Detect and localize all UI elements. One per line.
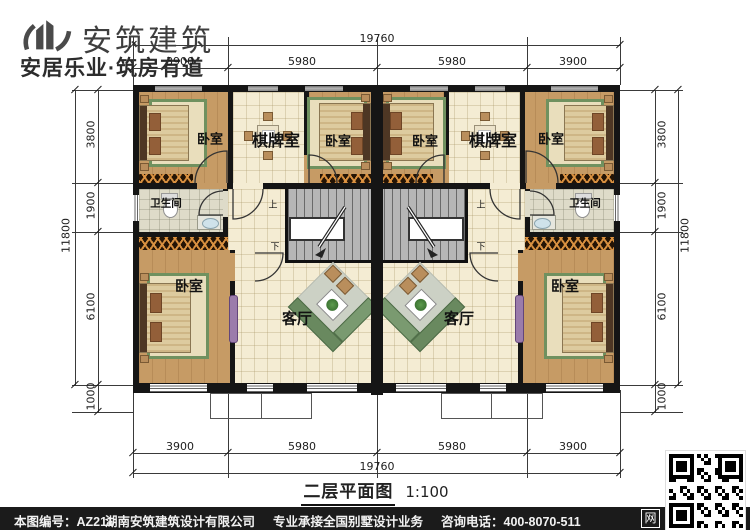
room-label-game-room: 棋牌室 bbox=[469, 127, 517, 151]
door-arc bbox=[233, 189, 263, 219]
room-label-bedroom: 卧室 bbox=[551, 276, 579, 296]
stair-arrow bbox=[408, 207, 434, 247]
door-arc bbox=[309, 155, 337, 183]
dim-label: 3900 bbox=[548, 55, 598, 68]
dim-label: 19760 bbox=[352, 32, 402, 45]
qr-code bbox=[666, 451, 745, 530]
dim-line bbox=[75, 90, 76, 385]
dim-label: 6100 bbox=[85, 282, 98, 332]
building-logo-icon bbox=[18, 12, 78, 54]
ext-line bbox=[620, 390, 621, 478]
room-label-bedroom: 卧室 bbox=[175, 276, 203, 296]
dim-label: 19760 bbox=[352, 460, 402, 473]
ext-line bbox=[527, 37, 528, 85]
drawing-title: 二层平面图 bbox=[301, 477, 395, 506]
dim-label: 5980 bbox=[277, 55, 327, 68]
dim-line bbox=[98, 90, 99, 412]
footer-info: 湖南安筑建筑设计有限公司 专业承接全国别墅设计业务 咨询电话：400-8070-… bbox=[105, 511, 581, 530]
dim-label: 1000 bbox=[656, 372, 669, 422]
logo bbox=[18, 12, 78, 54]
service-text: 专业承接全国别墅设计业务 bbox=[273, 511, 423, 530]
room-label-bedroom: 卧室 bbox=[538, 129, 564, 148]
qr-code-modules bbox=[669, 454, 743, 528]
room-label-bathroom: 卫生间 bbox=[569, 196, 601, 211]
dim-label: 1900 bbox=[85, 181, 98, 231]
dim-label: 5980 bbox=[427, 440, 477, 453]
stair-arrow-head bbox=[315, 248, 326, 258]
dim-label: 3900 bbox=[155, 440, 205, 453]
floor-plan-sheet: 安筑建筑 安居乐业·筑房有道 hunanazjz.com hunanazjz.c… bbox=[0, 0, 750, 530]
company-name: 湖南安筑建筑设计有限公司 bbox=[105, 511, 255, 530]
dim-label: 6100 bbox=[656, 282, 669, 332]
door-arc bbox=[530, 191, 554, 215]
stair-label-down: 下 bbox=[476, 240, 485, 253]
door-arc bbox=[470, 253, 498, 281]
ext-line bbox=[228, 37, 229, 85]
web-badge: 网 bbox=[641, 509, 660, 528]
dim-line bbox=[133, 473, 620, 474]
door-arc bbox=[199, 191, 223, 215]
room-label-bedroom: 卧室 bbox=[325, 131, 351, 150]
dim-label: 5980 bbox=[277, 440, 327, 453]
dim-label: 11800 bbox=[60, 211, 73, 261]
ext-line bbox=[72, 90, 133, 91]
dim-label: 1900 bbox=[656, 181, 669, 231]
ext-line bbox=[72, 232, 133, 233]
dim-label: 11800 bbox=[679, 211, 692, 261]
dim-label: 3800 bbox=[85, 110, 98, 160]
footer-bar: 本图编号：AZ211 湖南安筑建筑设计有限公司 专业承接全国别墅设计业务 咨询电… bbox=[0, 507, 750, 530]
drawing-title-block: 二层平面图 1:100 bbox=[250, 477, 500, 506]
phone-number: 咨询电话：400-8070-511 bbox=[441, 511, 581, 530]
stair-arrow-head bbox=[427, 248, 438, 258]
stair-label-up: 上 bbox=[268, 198, 277, 211]
door-arc bbox=[255, 253, 283, 281]
dim-label: 3900 bbox=[155, 55, 205, 68]
stair-label-up: 上 bbox=[476, 198, 485, 211]
room-label-bathroom: 卫生间 bbox=[150, 196, 182, 211]
dim-label: 3900 bbox=[548, 440, 598, 453]
door-arc bbox=[195, 151, 227, 183]
ext-line bbox=[72, 183, 133, 184]
ext-line bbox=[72, 412, 133, 413]
dim-label: 5980 bbox=[427, 55, 477, 68]
room-label-living-room: 客厅 bbox=[282, 308, 312, 329]
stair-label-down: 下 bbox=[270, 240, 279, 253]
dim-label: 3800 bbox=[656, 110, 669, 160]
ext-line bbox=[72, 385, 133, 386]
room-label-game-room: 棋牌室 bbox=[252, 127, 300, 151]
room-label-living-room: 客厅 bbox=[444, 308, 474, 329]
door-arc bbox=[416, 155, 444, 183]
room-label-bedroom: 卧室 bbox=[412, 131, 438, 150]
door-arc bbox=[490, 189, 520, 219]
drawing-number: 本图编号：AZ211 bbox=[14, 511, 113, 530]
drawing-scale: 1:100 bbox=[405, 483, 448, 501]
party-wall bbox=[371, 85, 383, 395]
stair-arrow bbox=[319, 207, 345, 247]
door-arc bbox=[526, 151, 558, 183]
room-label-bedroom: 卧室 bbox=[197, 129, 223, 148]
